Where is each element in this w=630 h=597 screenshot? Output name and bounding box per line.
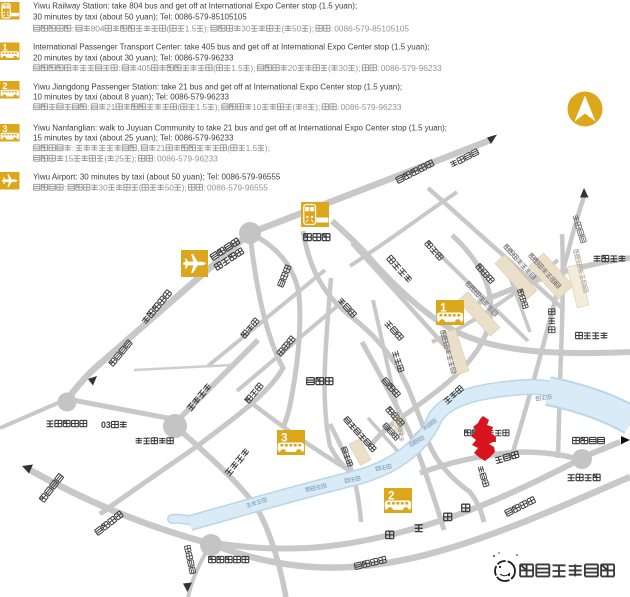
svg-text:804: 804: [91, 24, 105, 34]
svg-text:;: ;: [312, 24, 314, 34]
svg-text:30: 30: [339, 63, 349, 73]
svg-text:3: 3: [3, 124, 8, 134]
svg-text:,: ,: [137, 143, 139, 153]
svg-text:1.5: 1.5: [246, 143, 258, 153]
svg-text:0086-579-96555: 0086-579-96555: [207, 183, 268, 193]
svg-text:(: (: [328, 63, 331, 73]
svg-text:(: (: [282, 24, 285, 34]
svg-text::: :: [118, 63, 120, 73]
svg-text::: :: [331, 24, 333, 34]
svg-text:1.5: 1.5: [196, 102, 208, 112]
svg-text:30: 30: [241, 24, 251, 34]
svg-text:;: ;: [253, 63, 255, 73]
svg-text:30: 30: [99, 183, 109, 193]
svg-text:(: (: [139, 183, 142, 193]
svg-text:10: 10: [252, 102, 262, 112]
svg-text:0086-579-96233: 0086-579-96233: [157, 154, 218, 164]
svg-text:0086-579-96233: 0086-579-96233: [381, 63, 442, 73]
svg-text::: :: [87, 102, 89, 112]
svg-text::: :: [72, 143, 74, 153]
svg-text:50: 50: [292, 24, 302, 34]
svg-text:405: 405: [137, 63, 151, 73]
svg-text:(: (: [177, 102, 180, 112]
svg-text::: :: [203, 183, 205, 193]
svg-text:20: 20: [288, 63, 298, 73]
svg-text:21: 21: [106, 102, 116, 112]
svg-text::: :: [377, 63, 379, 73]
svg-text:0086-579-96233: 0086-579-96233: [341, 102, 402, 112]
svg-text::: :: [72, 24, 74, 34]
svg-text:;: ;: [318, 102, 320, 112]
svg-text:15: 15: [64, 154, 74, 164]
svg-text:8: 8: [303, 102, 308, 112]
svg-text:1: 1: [3, 43, 8, 53]
svg-text:(: (: [213, 63, 216, 73]
svg-text::: :: [153, 154, 155, 164]
svg-text:;: ;: [218, 102, 220, 112]
svg-text:2: 2: [3, 81, 8, 91]
svg-text:;: ;: [358, 63, 360, 73]
svg-text:;: ;: [268, 143, 270, 153]
svg-text:1.5: 1.5: [185, 24, 197, 34]
svg-text::: :: [64, 183, 66, 193]
svg-text:(: (: [104, 154, 107, 164]
svg-text:(: (: [167, 24, 170, 34]
svg-text:1.5: 1.5: [231, 63, 243, 73]
svg-text:0086-579-85105105: 0086-579-85105105: [334, 24, 409, 34]
svg-text:(: (: [227, 143, 230, 153]
svg-text:;: ;: [184, 183, 186, 193]
svg-text:;: ;: [207, 24, 209, 34]
svg-text:(: (: [292, 102, 295, 112]
svg-text::: :: [337, 102, 339, 112]
svg-text:;: ;: [134, 154, 136, 164]
svg-text:21: 21: [156, 143, 166, 153]
svg-text:50: 50: [165, 183, 175, 193]
svg-text:25: 25: [115, 154, 125, 164]
